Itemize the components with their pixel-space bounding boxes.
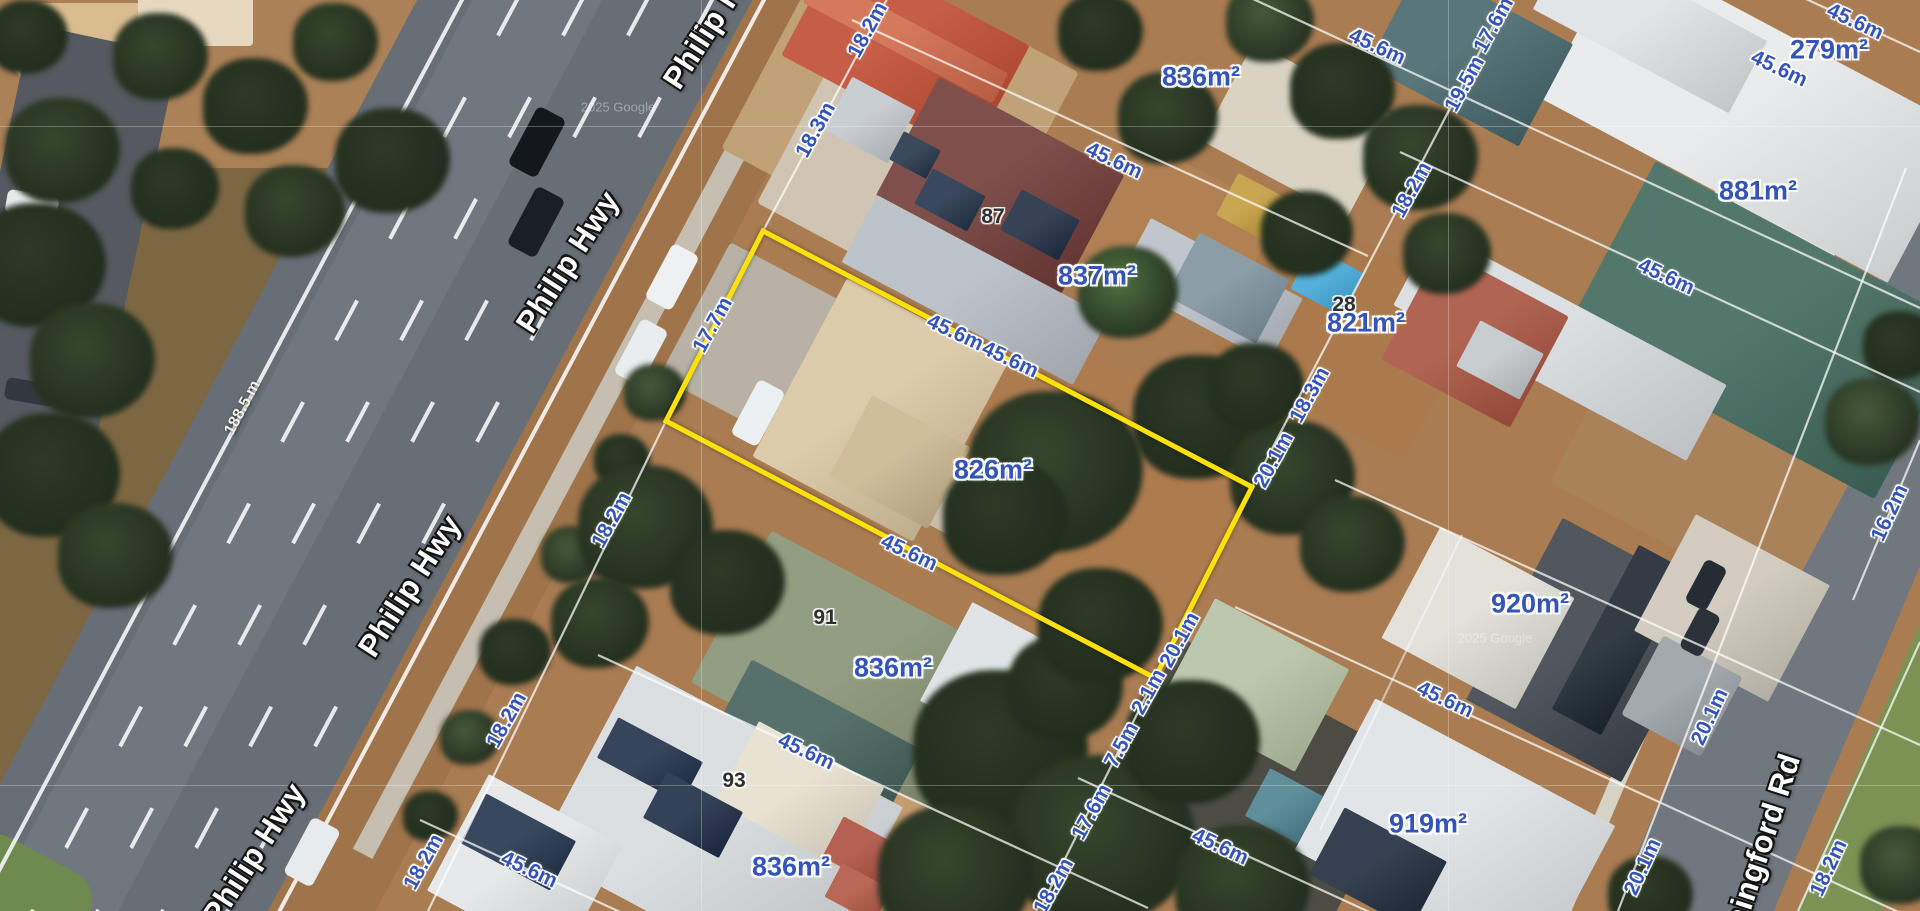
house-number-label: 87: [981, 205, 1004, 229]
tree: [1261, 191, 1353, 276]
satellite-map[interactable]: Philip HwyPhilip HwyPhilip HwyPhilip Hwy…: [0, 0, 1920, 911]
graticule-line: [0, 126, 1920, 127]
tree: [670, 530, 785, 636]
imagery-watermark: 2025 Google: [581, 100, 655, 115]
parcel-area-label: 836m²: [854, 653, 932, 684]
tree: [551, 578, 649, 668]
tree: [1300, 496, 1405, 593]
graticule-line: [701, 0, 702, 911]
parcel-area-label: 836m²: [752, 852, 830, 883]
parcel-area-label: 920m²: [1491, 589, 1569, 620]
house-number-label: 91: [813, 606, 836, 630]
parcel-area-label: 826m²: [954, 455, 1032, 486]
tree: [5, 98, 120, 204]
imagery-watermark: 2025 Google: [1458, 631, 1532, 646]
tree: [624, 364, 686, 421]
parcel-area-label: 837m²: [1058, 261, 1136, 292]
tree: [1863, 311, 1920, 380]
tree: [58, 503, 173, 609]
parcel-area-label: 836m²: [1162, 62, 1240, 93]
tree: [293, 3, 378, 81]
house-number-label: 93: [722, 769, 745, 793]
tree: [1038, 568, 1163, 683]
parcel-area-label: 919m²: [1389, 809, 1467, 840]
tree: [1058, 0, 1143, 71]
tree: [1825, 378, 1920, 465]
house-number-label: 28: [1332, 293, 1355, 317]
tree: [203, 58, 308, 155]
tree: [1226, 0, 1314, 62]
tree: [30, 303, 155, 418]
tree: [479, 619, 551, 685]
tree: [1860, 826, 1920, 904]
parcel-area-label: 279m²: [1790, 35, 1868, 66]
tree: [113, 13, 208, 100]
tree: [335, 108, 450, 214]
parcel-area-label: 881m²: [1719, 176, 1797, 207]
graticule-line: [1448, 0, 1449, 911]
